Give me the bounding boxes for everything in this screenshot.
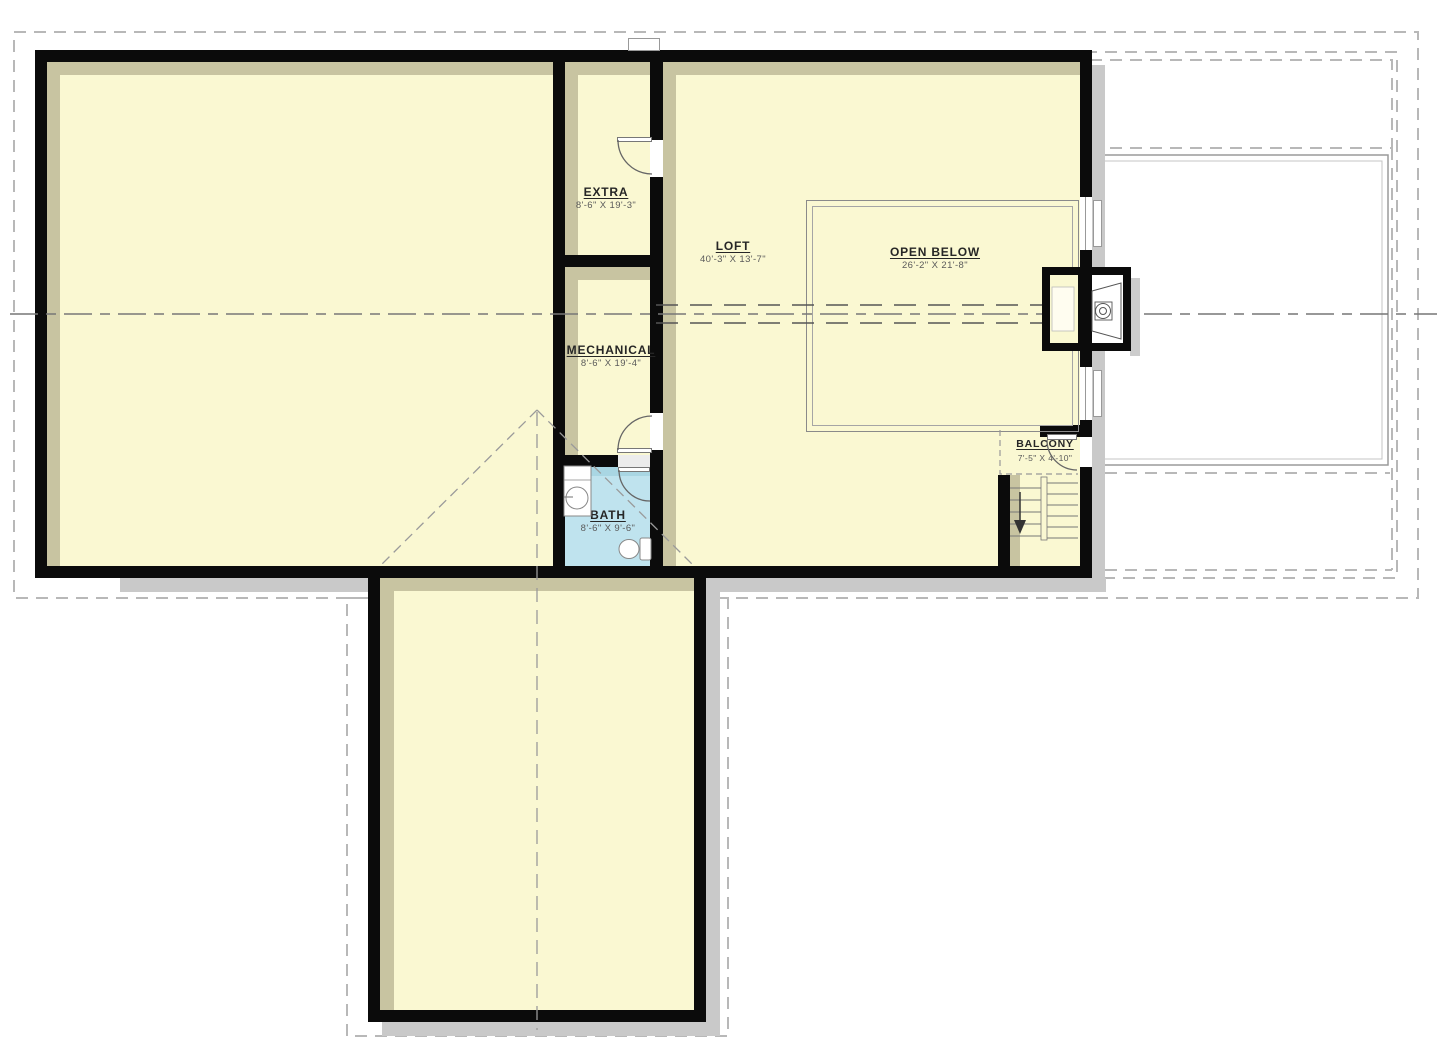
roof-valley-right (537, 410, 692, 564)
door-arc-mechanical (618, 416, 652, 450)
toilet-tank-icon (640, 538, 651, 560)
roof-valley-left (382, 410, 537, 564)
balcony-boundary-dashed (1000, 430, 1078, 474)
sink-icon (566, 487, 588, 509)
stair-down-arrow-icon (1014, 520, 1026, 534)
toilet-bowl-icon (619, 540, 639, 559)
door-arc-bath (619, 470, 650, 501)
fireplace (1046, 267, 1140, 356)
door-arc-balcony (1047, 440, 1077, 470)
fireplace-wall-strip (1078, 267, 1092, 351)
fireplace-flue-circle-outer (1096, 304, 1111, 319)
fireplace-hearth (1052, 287, 1074, 331)
stair-stringer (1041, 477, 1047, 540)
floor-plan: EXTRA 8'-6" X 19'-3" LOFT 40'-3" X 13'-7… (0, 0, 1445, 1049)
door-arc-extra (618, 140, 652, 174)
fireplace-shadow (1130, 278, 1140, 356)
symbols-layer (0, 0, 1445, 1049)
